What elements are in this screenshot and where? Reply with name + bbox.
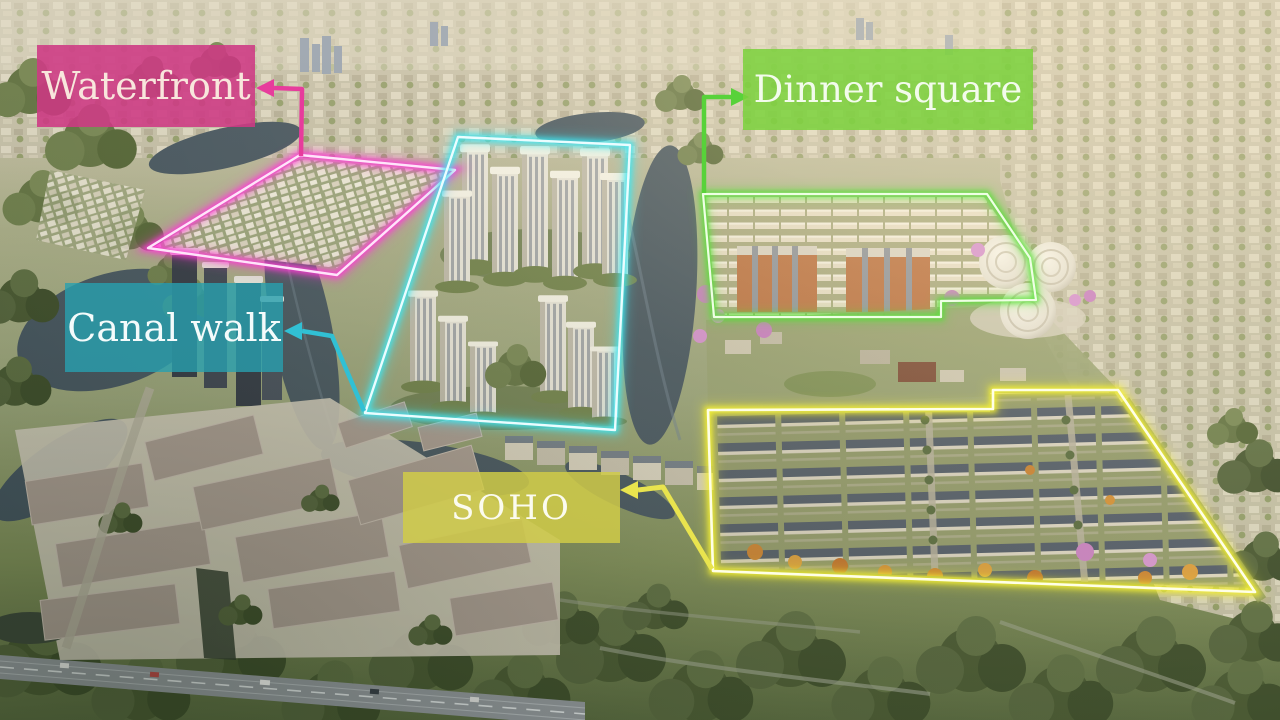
- canal-walk-label: Canal walk: [65, 283, 283, 372]
- soho-connector-line: [638, 487, 712, 569]
- canal-walk-zone-annotation: [284, 137, 630, 430]
- soho-outline-glow: [708, 390, 1255, 592]
- soho-zone-annotation: [620, 390, 1255, 592]
- soho-outline-halo: [708, 390, 1255, 592]
- dinner-square-label: Dinner square: [743, 49, 1033, 130]
- waterfront-arrow-icon: [256, 79, 274, 97]
- masterplan-aerial-map: Waterfront Canal walk Dinner square SOHO: [0, 0, 1280, 720]
- soho-arrow-icon: [620, 481, 638, 499]
- waterfront-connector-line: [274, 88, 302, 156]
- dinner-square-connector-line: [704, 97, 731, 193]
- canal-walk-connector-line: [302, 331, 364, 411]
- canal-walk-arrow-icon: [284, 322, 302, 340]
- soho-label: SOHO: [403, 472, 620, 543]
- waterfront-label: Waterfront: [37, 45, 255, 127]
- soho-outline: [708, 390, 1255, 592]
- dinner-square-outline-glow: [703, 194, 1036, 317]
- canal-walk-outline-halo: [365, 137, 630, 430]
